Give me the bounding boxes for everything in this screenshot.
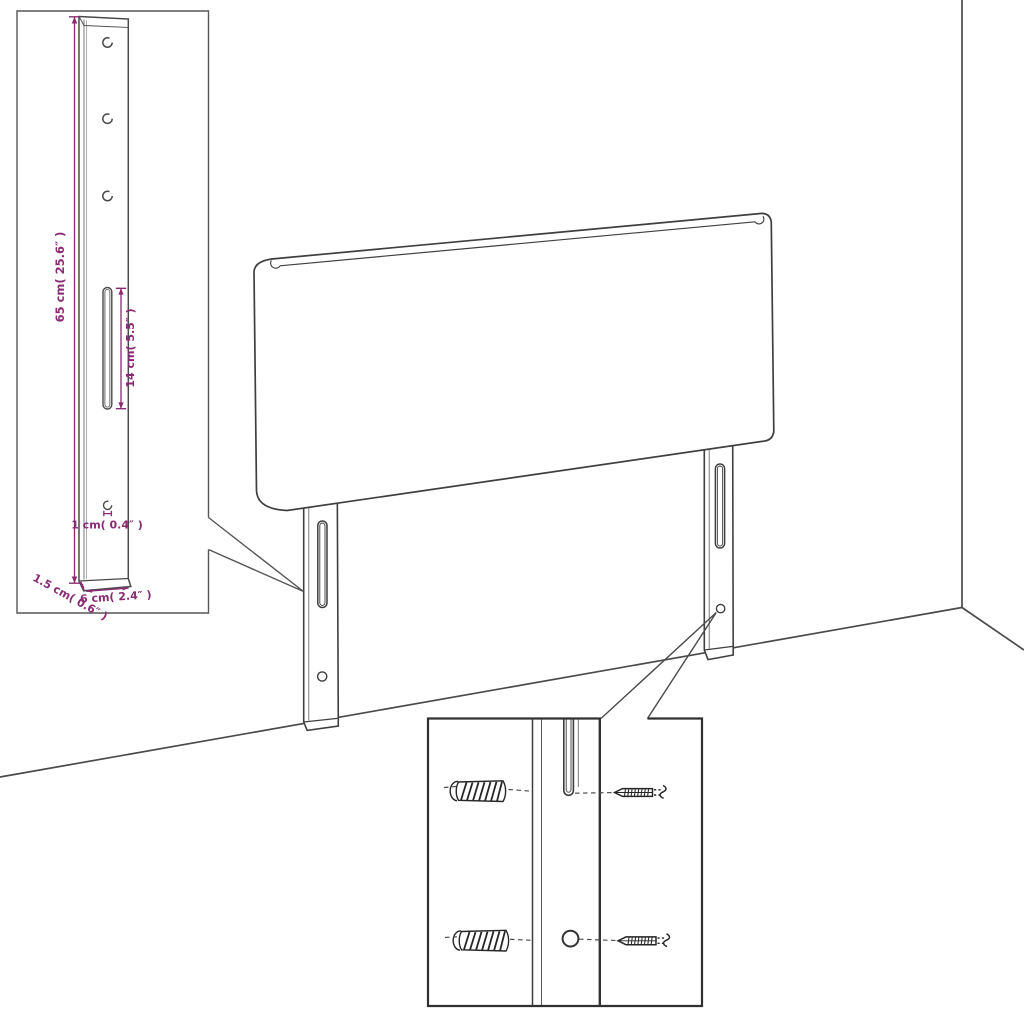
floor-line-right [962, 608, 1024, 651]
hardware-detail-inset [428, 613, 716, 1007]
hardware-callout-wedge [601, 613, 716, 719]
adjustment-slot [103, 288, 112, 410]
leg-closeup-slot-inner [566, 720, 571, 793]
dash-plug-bottom-left [445, 937, 457, 938]
screw-bottom-squiggle [664, 934, 670, 947]
wall-plug-top [450, 781, 505, 802]
leg-front-bar [79, 17, 131, 591]
alignment-dashes [444, 787, 617, 941]
leg-inset-callout-wedge [209, 518, 304, 592]
dim-slot-label: 14 cm( 5.5″ ) [124, 308, 137, 387]
headboard-panel [254, 213, 774, 510]
left-leg [304, 494, 339, 730]
small-fix-hole [104, 501, 112, 509]
wall-plug-bottom-threads [464, 931, 505, 951]
screw-top-squiggle [660, 786, 666, 799]
dimension-marks [69, 17, 129, 593]
leg-closeup [533, 720, 600, 1006]
leg-closeup-slot [564, 720, 574, 796]
dash-slot-to-screw-top [575, 793, 614, 794]
screw-top [615, 786, 667, 799]
mount-hole-2 [103, 114, 112, 123]
product-diagram-image: 65 cm( 25.6″ ) 14 cm( 5.5″ ) 1 cm( 0.4″ … [0, 0, 1024, 1024]
dimension-labels: 65 cm( 25.6″ ) 14 cm( 5.5″ ) 1 cm( 0.4″ … [31, 232, 152, 623]
hardware-inset-border [428, 719, 702, 1007]
dash-plug-top-to-leg [509, 790, 533, 792]
dim-hole-bracket [104, 511, 112, 516]
leg-closeup-hole [563, 931, 579, 947]
wall-plug-bottom [453, 930, 508, 951]
mount-hole-3 [103, 191, 112, 200]
dash-hole-to-screw-bottom [579, 939, 617, 940]
adjustment-slot-inner [105, 289, 110, 407]
dim-height-label: 65 cm( 25.6″ ) [53, 232, 67, 323]
right-leg [704, 439, 733, 660]
floor-line-left [0, 608, 962, 778]
headboard [254, 213, 774, 510]
dash-plug-bottom-to-leg [510, 939, 532, 940]
screw-bottom [618, 934, 670, 947]
diagram-canvas: 65 cm( 25.6″ ) 14 cm( 5.5″ ) 1 cm( 0.4″ … [0, 0, 1024, 1024]
mount-hole-1 [103, 38, 112, 47]
dim-hole-label: 1 cm( 0.4″ ) [71, 519, 143, 532]
right-leg-body [704, 439, 733, 660]
wall-plug-top-threads [461, 782, 502, 802]
